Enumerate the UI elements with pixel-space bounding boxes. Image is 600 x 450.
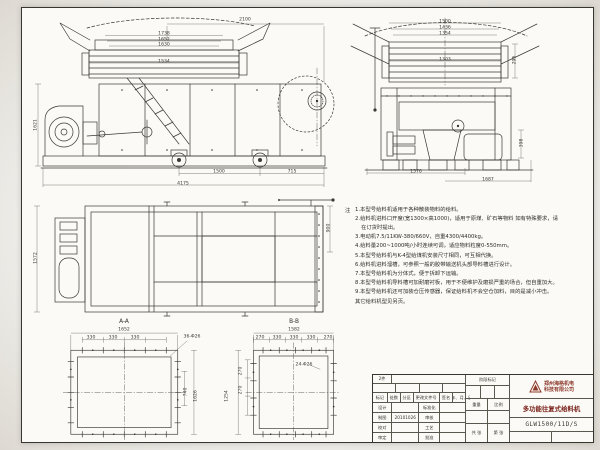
sheets-row: 共 张 第 张 — [466, 424, 509, 442]
plan-view-drawing — [27, 194, 339, 334]
plan-view: 1572900 — [27, 194, 339, 334]
weight-scale-row: 重量 比例 — [466, 399, 509, 411]
empty-cell — [495, 386, 509, 398]
company-name-line1: 郑州海格机电 — [544, 381, 574, 387]
note-line: 8.本型号给料机导料槽可加耐磨衬板，用于不便维护及磨损严重的场合，但自重加大。 — [355, 279, 560, 288]
titleblock: 2件 标记处数分区更改文件号签名年、月、日 设计标准化制图20101026审核校… — [372, 374, 593, 442]
revision-row: 2件 — [373, 375, 465, 384]
end-view: 150014361354130329539815761687 — [337, 10, 552, 192]
section-bb-label: B-B — [289, 319, 299, 325]
titleblock-cell: 处数 — [388, 393, 401, 402]
revision-header-row: 标记处数分区更改文件号签名年、月、日 — [373, 393, 465, 403]
dim-label: 330 — [131, 337, 140, 342]
drawing-sheet: 21001738165216301534162115007154175 — [21, 7, 594, 443]
dim-label: 1254 — [226, 390, 231, 402]
empty-cell — [481, 386, 496, 398]
dim-label: 1582 — [288, 329, 300, 334]
titleblock-cell — [440, 433, 468, 442]
note-line: 其它给料机型见另页。 — [355, 298, 560, 307]
dim-label: 1630 — [158, 44, 170, 49]
empty-cell — [466, 386, 481, 398]
titleblock-cell: 更改文件号 — [414, 393, 440, 402]
dim-label: 398 — [521, 139, 526, 148]
dim-label: 1500 — [439, 21, 451, 26]
dim-label: 330 — [273, 337, 282, 342]
dim-label: 1534 — [158, 61, 170, 66]
empty-cell — [510, 432, 552, 442]
company-name-line2: 科技有限公司 — [544, 387, 574, 393]
dim-label: 900 — [328, 224, 333, 233]
revision-row — [373, 384, 465, 393]
stage-values-row — [466, 386, 509, 399]
empty-cell — [466, 411, 488, 423]
titleblock-cell — [392, 423, 419, 432]
dim-label: 1626 — [195, 390, 200, 402]
titleblock-row: 设计标准化 — [373, 403, 465, 413]
page-label: 第 张 — [488, 424, 509, 442]
empty-cell — [373, 384, 396, 392]
titleblock-cell — [392, 403, 419, 412]
sheets-label: 共 张 — [466, 424, 488, 442]
notes-marker: 注 — [345, 207, 350, 216]
dim-label: 1572 — [35, 252, 40, 264]
empty-cell — [488, 411, 509, 423]
scale-label: 比例 — [488, 399, 509, 410]
dim-label: 715 — [288, 171, 297, 176]
titleblock-middle: 阶段标记 重量 比例 共 张 第 张 — [466, 375, 510, 442]
titleblock-cell: 校对 — [373, 423, 392, 432]
product-title: 多功能往复式给料机 — [510, 399, 593, 418]
empty-cell — [552, 432, 593, 442]
titleblock-cell: 审定 — [373, 433, 392, 442]
titleblock-cell — [440, 413, 468, 422]
titleblock-cell: 工艺 — [419, 423, 440, 432]
weight-label: 重量 — [466, 399, 488, 410]
empty-cell — [443, 384, 465, 392]
page: { "sheet": { "paper_color": "#fbfaf6", "… — [0, 0, 600, 450]
dim-label: 740 — [185, 388, 190, 397]
titleblock-row: 审定批准 — [373, 433, 465, 442]
section-bb: B-B 1582270330330330 — [222, 314, 347, 440]
drawing-number: GLW1500/11D/S — [510, 418, 593, 432]
dim-label: 2100 — [239, 19, 251, 24]
company-name: 郑州海格机电 科技有限公司 — [544, 381, 574, 393]
dim-label: 1436 — [439, 27, 451, 32]
titleblock-cell: 设计 — [373, 403, 392, 412]
dim-label: 330 — [109, 337, 118, 342]
corner-note: 2件 — [373, 375, 392, 383]
signature-table: 设计标准化制图20101026审核校对工艺审定批准 — [373, 403, 465, 442]
note-line: 2.给料机进料口开度(宽1300×高1000)，适用于原煤、矿石等物料 如有特殊… — [355, 215, 560, 232]
dim-label: 330 — [307, 337, 316, 342]
titleblock-left: 2件 标记处数分区更改文件号签名年、月、日 设计标准化制图20101026审核校… — [373, 375, 466, 442]
company-logo-row: 郑州海格机电 科技有限公司 — [510, 375, 593, 399]
titleblock-cell: 批准 — [419, 433, 440, 442]
dim-label: 36-Φ26 — [184, 336, 201, 341]
titleblock-row: 校对工艺 — [373, 423, 465, 433]
titleblock-cell — [392, 433, 419, 442]
section-bb-drawing — [222, 314, 347, 440]
titleblock-cell: 标记 — [373, 393, 388, 402]
dim-label: 270 — [240, 386, 245, 395]
titleblock-cell: 标准化 — [419, 403, 440, 412]
note-line: 3.电动机7.5/11KW-380/660V，自重4300/4400kg。 — [355, 233, 560, 242]
dim-label: 270 — [324, 337, 333, 342]
titleblock-row: 制图20101026审核 — [373, 413, 465, 423]
dim-label: 1303 — [439, 59, 451, 64]
empty-cell — [420, 384, 443, 392]
notes: 注 1.本型号给料机适用于各种散装物料的给料。2.给料机进料口开度(宽1300×… — [346, 206, 560, 307]
titleblock-right: 郑州海格机电 科技有限公司 多功能往复式给料机 GLW1500/11D/S — [510, 375, 593, 442]
titleblock-cell — [440, 423, 468, 432]
note-line: 9.本型号给料机还可加装仓压传感器，保证给料机不会空仓加料，目的是减小冲击。 — [355, 288, 560, 297]
titleblock-cell: 审核 — [419, 413, 440, 422]
dim-label: 330 — [290, 337, 299, 342]
dim-label: 295 — [514, 56, 519, 65]
titleblock-cell: 20101026 — [392, 413, 419, 422]
dim-label: 1652 — [118, 329, 130, 334]
note-line: 7.本型号给料机为分体式，便于拆卸下运输。 — [355, 270, 560, 279]
note-line: 6.给料机进料溜槽，可参照一般的胶带输送机头部导料槽进行设计。 — [355, 261, 560, 270]
weight-scale-values-row — [466, 411, 509, 424]
dim-label: 1576 — [410, 171, 422, 176]
dim-label: 330 — [87, 337, 96, 342]
stage-row: 阶段标记 — [466, 375, 509, 386]
section-aa: A-A 165233033033036- — [40, 314, 220, 440]
titleblock-cell — [440, 403, 468, 412]
note-line: 5.本型号给料机与K-4型给煤机安装尺寸相同，可互相代换。 — [355, 252, 560, 261]
note-line: 1.本型号给料机适用于各种散装物料的给料。 — [355, 206, 560, 215]
titleblock-bottom-row — [510, 432, 593, 442]
empty-cell — [396, 384, 419, 392]
section-aa-drawing — [40, 314, 220, 440]
titleblock-cell: 签名 — [440, 393, 454, 402]
side-view: 21001738165216301534162115007154175 — [27, 10, 337, 192]
dim-label: 1687 — [482, 179, 494, 184]
stage-label: 阶段标记 — [466, 375, 509, 385]
section-aa-label: A-A — [119, 319, 129, 325]
dim-label: 24-Φ26 — [296, 364, 313, 369]
side-view-drawing — [27, 10, 337, 192]
dim-label: 270 — [240, 367, 245, 376]
dim-label: 1738 — [158, 33, 170, 38]
titleblock-cell: 分区 — [401, 393, 414, 402]
dim-label: 1621 — [35, 119, 40, 131]
dim-label: 4175 — [177, 183, 189, 188]
titleblock-cell: 制图 — [373, 413, 392, 422]
dim-label: 270 — [256, 337, 265, 342]
note-line: 4.给料量200~1000吨/小时连续可调，适应物料粒度0-550mm。 — [355, 242, 560, 251]
notes-list: 1.本型号给料机适用于各种散装物料的给料。2.给料机进料口开度(宽1300×高1… — [346, 206, 560, 306]
end-view-drawing — [337, 10, 552, 192]
dim-label: 1500 — [213, 171, 225, 176]
dim-label: 1354 — [439, 33, 451, 38]
company-logo-icon — [529, 380, 542, 393]
empty-cell — [392, 375, 465, 383]
